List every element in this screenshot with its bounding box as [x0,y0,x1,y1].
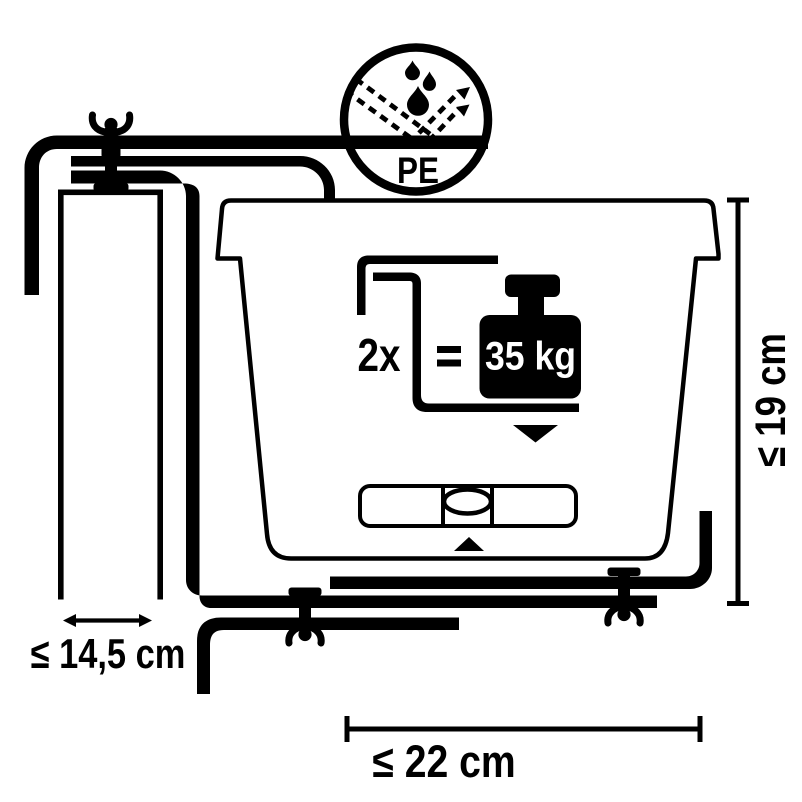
svg-text:≤ 22 cm: ≤ 22 cm [372,736,515,786]
svg-text:≤ 19 cm: ≤ 19 cm [747,333,794,467]
svg-text:35 kg: 35 kg [485,335,576,379]
svg-text:PE: PE [397,151,439,192]
svg-text:≤ 14,5 cm: ≤ 14,5 cm [31,631,186,678]
svg-text:2x: 2x [358,330,401,381]
